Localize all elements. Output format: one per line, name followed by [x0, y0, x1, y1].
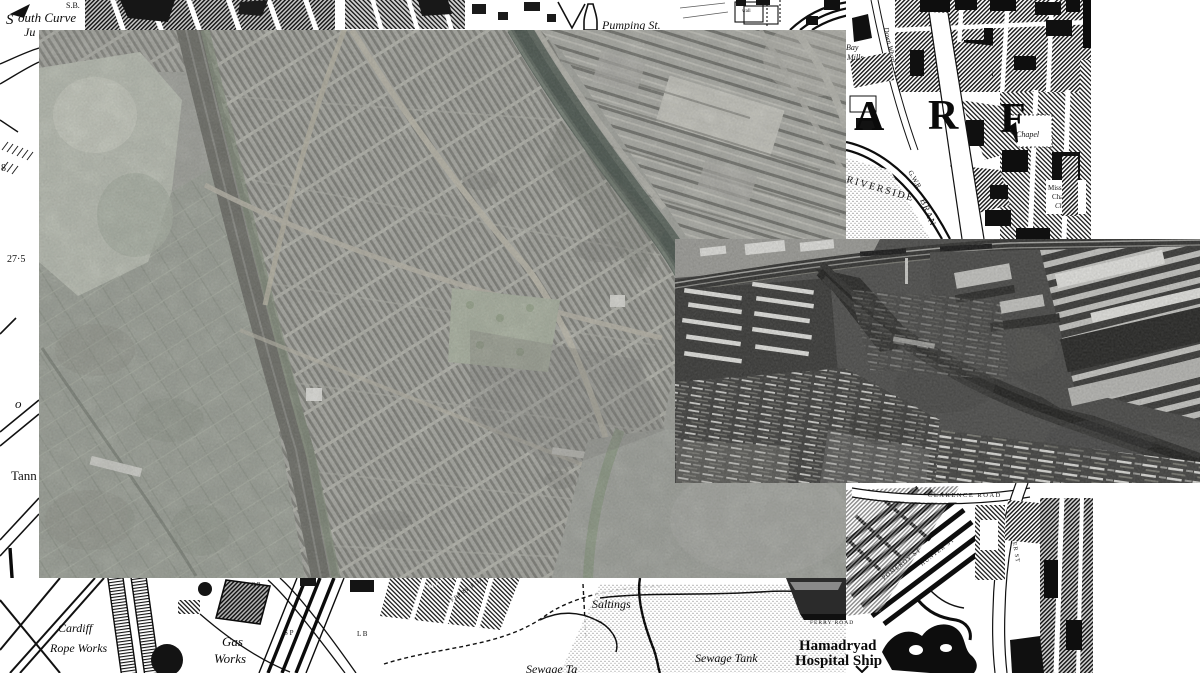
svg-text:S P: S P — [252, 582, 261, 588]
svg-text:Sewage Tank: Sewage Tank — [695, 651, 758, 665]
svg-text:R: R — [928, 93, 959, 139]
svg-text:Mills: Mills — [846, 53, 863, 62]
svg-text:FERRY ROAD: FERRY ROAD — [810, 620, 854, 626]
svg-text:Hamadryad: Hamadryad — [799, 638, 877, 654]
svg-text:Gas: Gas — [222, 634, 243, 649]
svg-text:CLARENCE ROAD: CLARENCE ROAD — [928, 492, 1002, 499]
svg-text:F: F — [1000, 96, 1026, 142]
svg-text:Rope Works: Rope Works — [49, 641, 108, 655]
svg-text:wall: wall — [742, 9, 751, 14]
svg-text:Sewage Ta: Sewage Ta — [526, 662, 577, 673]
svg-text:Saltings: Saltings — [592, 597, 631, 611]
svg-text:Tann: Tann — [11, 468, 37, 483]
svg-text:o: o — [15, 396, 22, 411]
svg-text:S P: S P — [284, 629, 294, 637]
svg-text:Pumping St.: Pumping St. — [601, 18, 661, 32]
svg-text:outh Curve: outh Curve — [18, 10, 76, 25]
svg-text:S.B.: S.B. — [66, 1, 80, 10]
svg-text:Works: Works — [214, 651, 246, 666]
svg-text:8: 8 — [1, 163, 6, 174]
svg-text:Bay: Bay — [846, 43, 859, 52]
svg-text:Cardiff: Cardiff — [58, 621, 94, 635]
svg-text:Hospital Ship: Hospital Ship — [795, 653, 882, 669]
svg-text:A: A — [854, 94, 885, 140]
svg-text:L B: L B — [357, 630, 368, 638]
svg-text:27·5: 27·5 — [7, 254, 25, 265]
svg-text:Ju: Ju — [24, 25, 35, 39]
